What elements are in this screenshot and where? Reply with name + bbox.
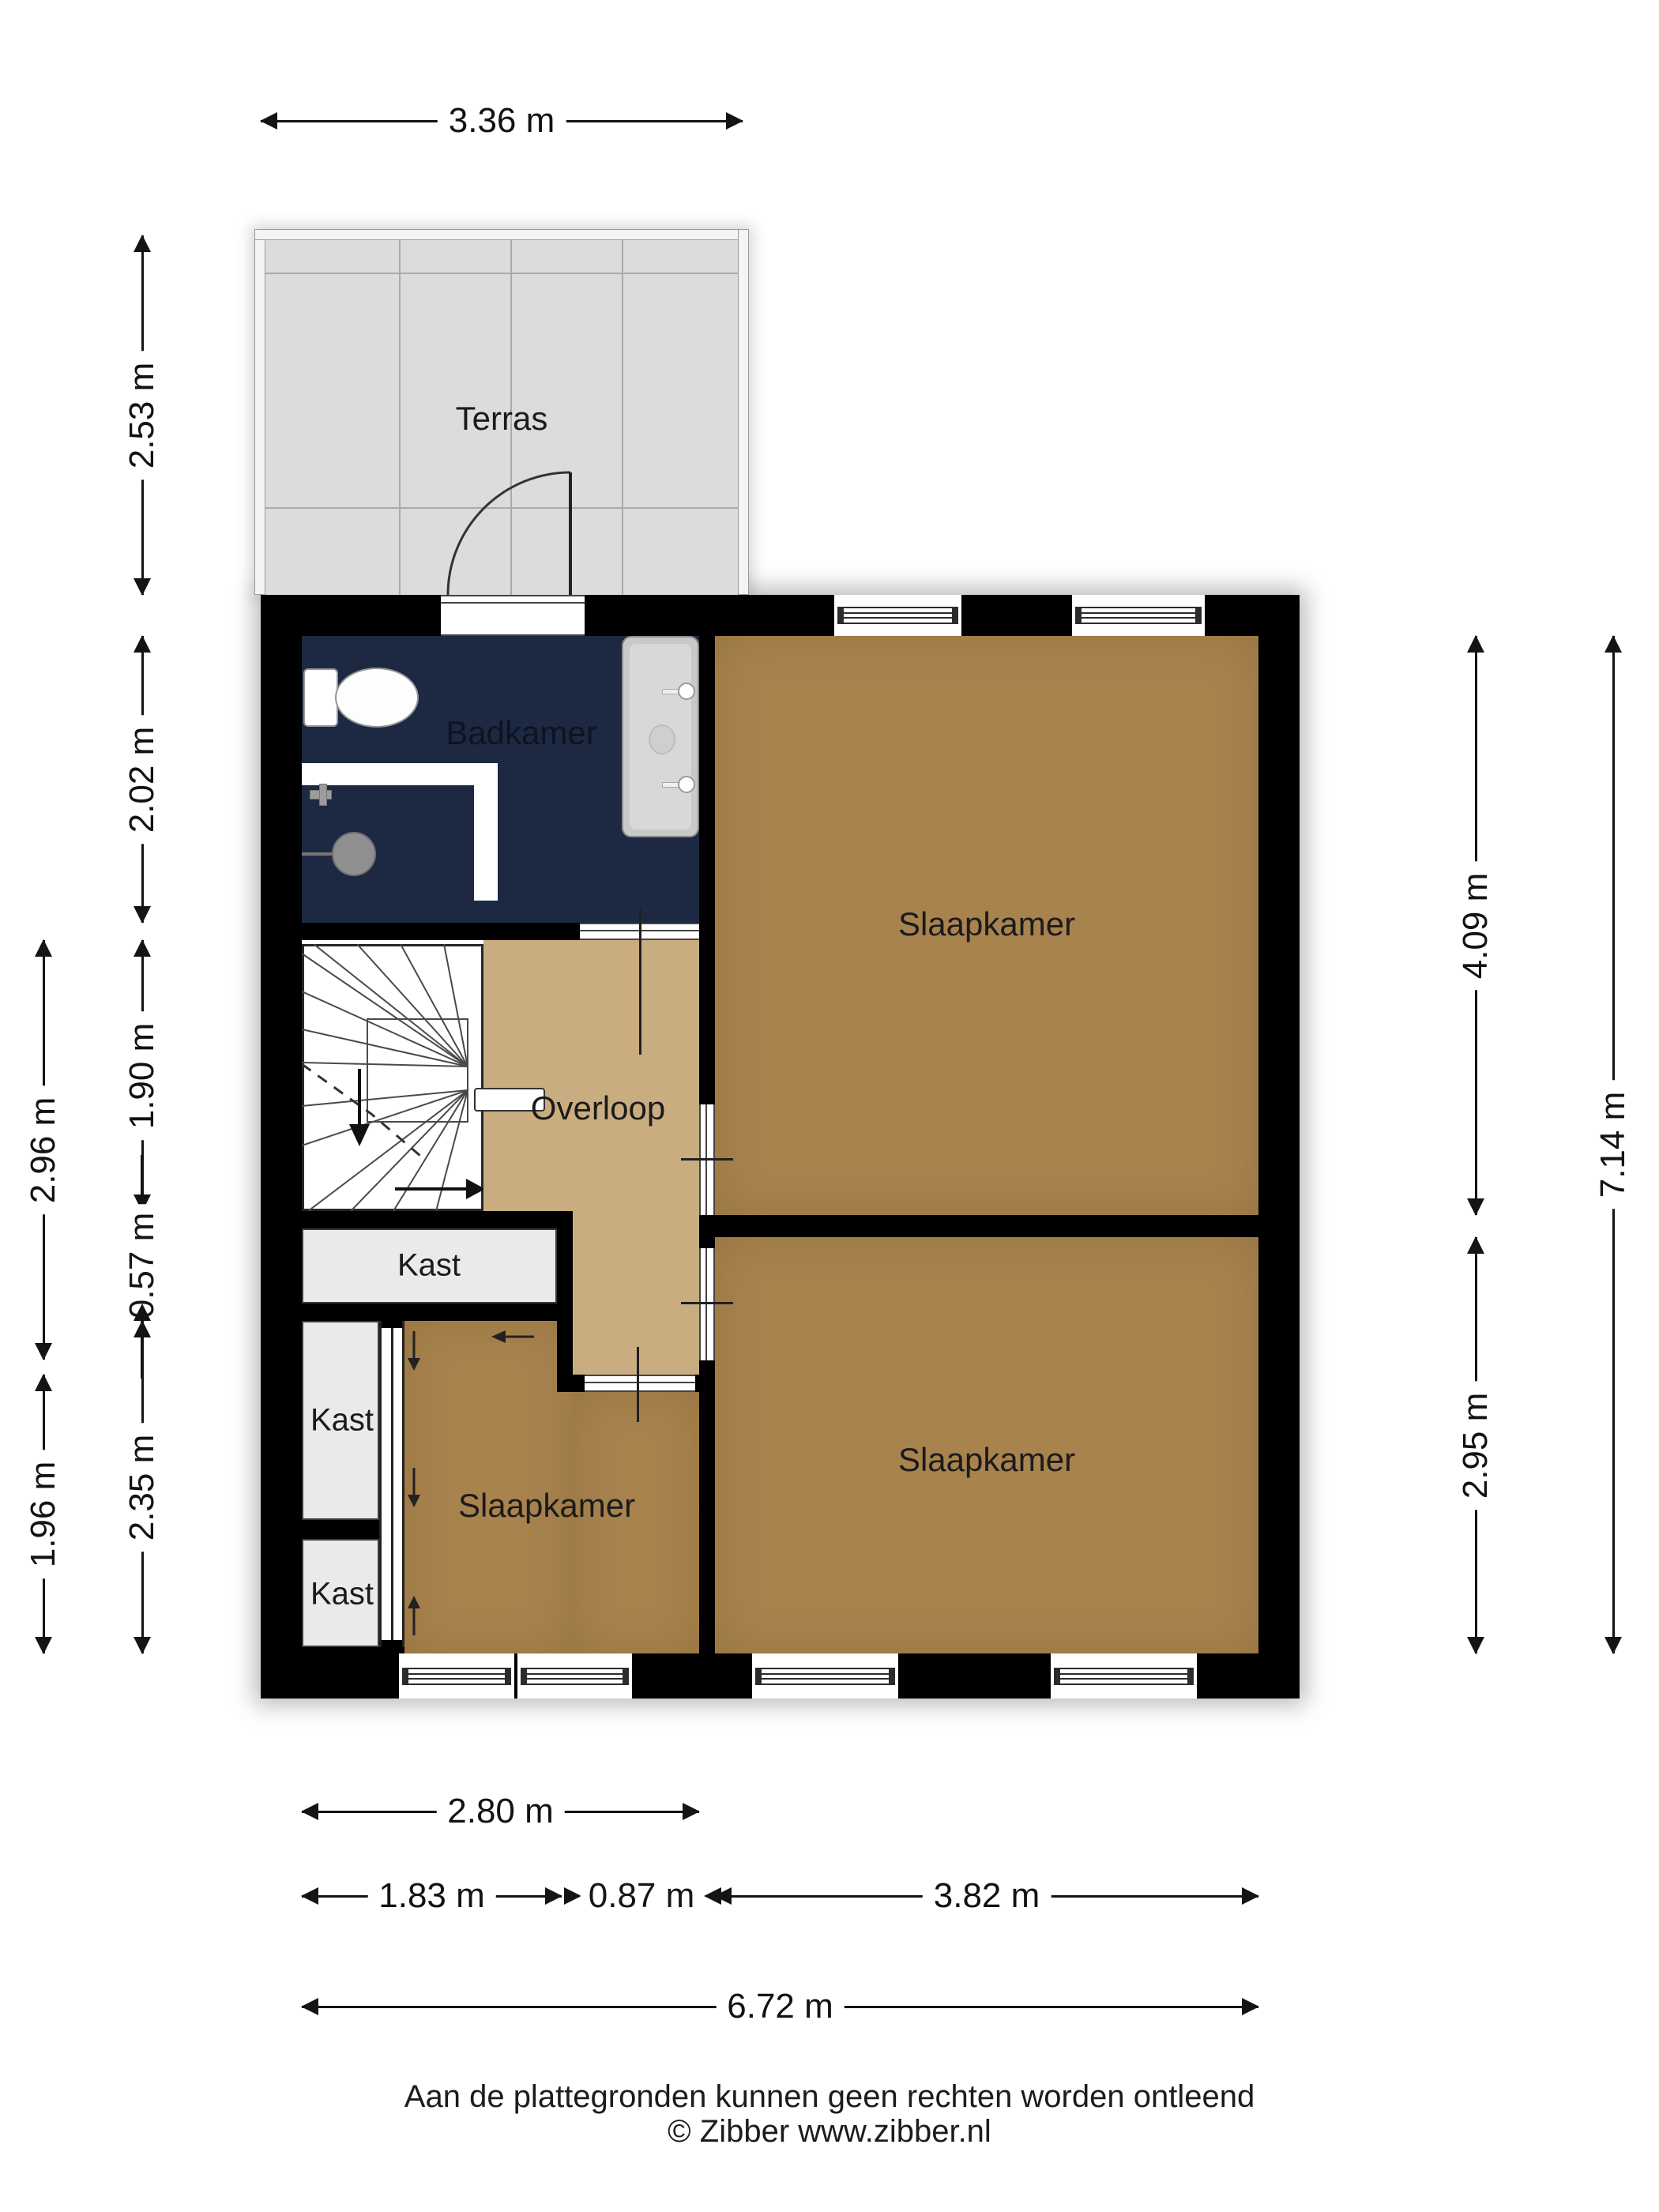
terrace-wall-left	[254, 229, 265, 595]
badkamer-door-leaf-icon	[639, 908, 641, 1055]
terras-tile-line-v1	[399, 240, 401, 595]
dim-top-width-label: 3.36 m	[438, 100, 566, 142]
bathroom-partition-horizontal	[302, 763, 498, 785]
room-overloop-main	[483, 940, 699, 1211]
dim-slaapkamer-rechts-height-label: 2.95 m	[1454, 1381, 1497, 1510]
footer-disclaimer: Aan de plattegronden kunnen geen rechten…	[404, 2079, 1255, 2115]
floor-plan: Terras	[0, 0, 1659, 2212]
bathtub-faucet-1-icon	[678, 683, 695, 700]
toilet-bowl-icon	[335, 668, 419, 728]
slaapkamer-rechts-label: Slaapkamer	[898, 1441, 1075, 1479]
slaapkamer-rechts-door-opening	[699, 1248, 715, 1360]
wall-bedroom-divider	[699, 1215, 1258, 1237]
slide-arrow-down-2-icon	[404, 1466, 423, 1507]
kast-onder-label: Kast	[310, 1577, 374, 1612]
overloop-label: Overloop	[531, 1089, 665, 1127]
dim-bottom-382-label: 3.82 m	[923, 1875, 1051, 1917]
dim-bottom-382: 3.82 m	[715, 1878, 1258, 1914]
terrace-wall-right	[738, 229, 749, 595]
window-glazing-icon	[1054, 1668, 1194, 1685]
dim-bottom-087-arrow-right-icon	[564, 1887, 581, 1905]
terras-tile-line-v3	[622, 240, 623, 595]
slide-arrow-down-1-icon	[404, 1330, 423, 1371]
sliding-door-rail-cap-bottom	[382, 1640, 402, 1647]
dim-terras-height: 2.53 m	[124, 235, 160, 595]
kast-midden-label: Kast	[310, 1403, 374, 1439]
window-bottom-2	[752, 1653, 898, 1698]
bathroom-partition-vertical	[474, 763, 498, 901]
slaapkamer-top-door-leaf-icon	[681, 1158, 733, 1161]
stairs	[302, 944, 483, 1211]
dim-left-outer-2-label: 1.96 m	[22, 1450, 65, 1578]
shower-faucet-handle-icon	[319, 784, 327, 806]
slaapkamer-links-label: Slaapkamer	[458, 1487, 635, 1525]
kast-boven-label: Kast	[397, 1248, 461, 1284]
window-bottom-3	[1051, 1653, 1197, 1698]
wall-under-kast	[261, 1303, 573, 1321]
wall-kast-right	[557, 1211, 573, 1392]
dim-bottom-total-label: 6.72 m	[716, 1985, 845, 2028]
dim-total-height: 7.14 m	[1595, 636, 1631, 1653]
slide-arrow-left-icon	[491, 1327, 536, 1346]
bathtub-faucet-2-icon	[678, 776, 695, 793]
window-bottom-1a	[399, 1653, 514, 1698]
sliding-door-rail	[379, 1321, 404, 1647]
dim-left-outer-1: 2.96 m	[25, 940, 62, 1360]
dim-bottom-280: 2.80 m	[302, 1793, 699, 1830]
dim-slaapkamer-top-height-label: 4.09 m	[1454, 861, 1497, 990]
footer-copyright: © Zibber www.zibber.nl	[668, 2114, 991, 2150]
dim-bottom-total: 6.72 m	[302, 1988, 1258, 2025]
terrace-door-swing-icon	[434, 442, 608, 600]
wall-right	[1258, 595, 1300, 1698]
slaapkamer-links-door-leaf-icon	[637, 1347, 639, 1422]
dim-bottom-183: 1.83 m	[302, 1878, 562, 1914]
dim-bottom-183-label: 1.83 m	[367, 1875, 496, 1917]
window-glazing-icon	[521, 1668, 629, 1685]
window-top-2	[1072, 595, 1205, 636]
bathtub-fixture	[622, 636, 699, 837]
terrace-wall-top	[254, 229, 749, 240]
window-top-1	[834, 595, 961, 636]
dim-total-height-label: 7.14 m	[1592, 1081, 1635, 1209]
slaapkamer-top-label: Slaapkamer	[898, 905, 1075, 943]
dim-left-outer-2: 1.96 m	[25, 1375, 62, 1653]
window-bottom-1b	[517, 1653, 632, 1698]
wall-corner-bottom-left	[261, 1647, 404, 1698]
sliding-door-rail-centerline	[391, 1321, 393, 1647]
bathtub-drain-icon	[649, 724, 675, 754]
slaapkamer-links-door-opening	[585, 1375, 695, 1392]
wall-under-stairs	[261, 1211, 573, 1228]
dim-kast-arrow-up-icon	[134, 1303, 151, 1321]
dim-badkamer-height: 2.02 m	[124, 636, 160, 923]
dim-left-outer-1-label: 2.96 m	[22, 1085, 65, 1214]
slaapkamer-rechts-door-leaf-icon	[681, 1302, 733, 1304]
shower-head-icon	[332, 832, 376, 876]
dim-top-width: 3.36 m	[261, 103, 743, 139]
sliding-door-rail-cap-top	[382, 1321, 402, 1328]
dim-links-onder-height-label: 2.35 m	[121, 1423, 164, 1552]
dim-links-onder-height: 2.35 m	[124, 1321, 160, 1653]
window-glazing-icon	[402, 1668, 511, 1685]
window-glazing-icon	[837, 607, 958, 624]
toilet-tank	[303, 668, 338, 727]
terras-tile-line-h1	[265, 273, 738, 274]
dim-badkamer-height-label: 2.02 m	[121, 715, 164, 844]
window-glazing-icon	[755, 1668, 895, 1685]
badkamer-label: Badkamer	[446, 714, 596, 752]
dim-slaapkamer-rechts-height: 2.95 m	[1458, 1237, 1494, 1653]
room-overloop-notch	[573, 1211, 699, 1375]
terras-label: Terras	[456, 400, 548, 438]
terrace-door-opening	[441, 595, 585, 636]
dim-bottom-280-label: 2.80 m	[436, 1790, 565, 1833]
dim-overloop-height-label: 1.90 m	[121, 1011, 164, 1140]
dim-terras-height-label: 2.53 m	[121, 351, 164, 480]
dim-slaapkamer-top-height: 4.09 m	[1458, 636, 1494, 1215]
window-glazing-icon	[1075, 607, 1202, 624]
slide-arrow-up-icon	[404, 1596, 423, 1637]
dim-bottom-087-label: 0.87 m	[581, 1875, 703, 1917]
